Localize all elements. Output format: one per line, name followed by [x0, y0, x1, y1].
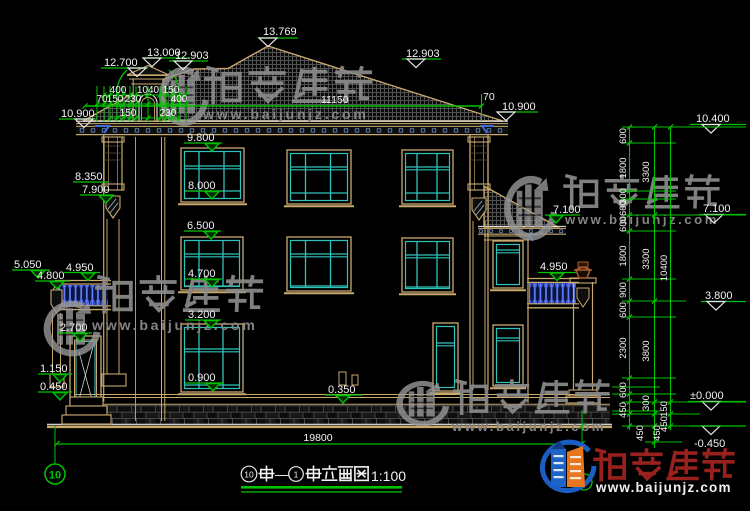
svg-text:3800: 3800: [641, 340, 652, 361]
svg-text:2300: 2300: [618, 337, 629, 358]
svg-text:www.baijunjz.com: www.baijunjz.com: [91, 318, 258, 334]
svg-text:8.000: 8.000: [188, 180, 216, 192]
svg-text:3300: 3300: [641, 248, 652, 269]
svg-text:10.900: 10.900: [502, 101, 536, 113]
svg-text:3300: 3300: [641, 161, 652, 182]
svg-text:4.950: 4.950: [540, 261, 568, 273]
svg-text:13.769: 13.769: [263, 26, 297, 38]
svg-text:600: 600: [618, 128, 629, 144]
svg-text:8.350: 8.350: [75, 171, 103, 183]
svg-text:450: 450: [635, 425, 646, 441]
svg-text:www.baijunjz.com: www.baijunjz.com: [202, 107, 369, 123]
svg-text:-0.450: -0.450: [694, 438, 725, 450]
svg-text:900: 900: [618, 282, 629, 298]
svg-text:9.800: 9.800: [187, 132, 215, 144]
svg-text:3.200: 3.200: [188, 309, 216, 321]
svg-text:12.700: 12.700: [104, 57, 138, 69]
svg-text:10400: 10400: [659, 255, 670, 281]
svg-text:1:100: 1:100: [371, 468, 406, 484]
svg-text:7.900: 7.900: [82, 184, 110, 196]
svg-text:www.baijunjz.com: www.baijunjz.com: [564, 212, 719, 227]
svg-text:150: 150: [120, 108, 137, 119]
svg-text:150: 150: [659, 401, 670, 417]
svg-text:4.800: 4.800: [37, 270, 65, 282]
svg-text:1.150: 1.150: [40, 363, 68, 375]
svg-text:600: 600: [618, 382, 629, 398]
svg-text:0.350: 0.350: [328, 384, 356, 396]
svg-text:1800: 1800: [618, 245, 629, 266]
svg-text:600: 600: [618, 302, 629, 318]
svg-text:10: 10: [244, 470, 254, 480]
svg-text:12.903: 12.903: [406, 48, 440, 60]
svg-text:12.903: 12.903: [175, 50, 209, 62]
svg-text:450: 450: [652, 425, 663, 441]
svg-text:11150: 11150: [321, 94, 349, 106]
svg-text:7.100: 7.100: [703, 203, 731, 215]
svg-text:2.700: 2.700: [60, 322, 88, 334]
svg-text:www.baijunjz.com: www.baijunjz.com: [595, 480, 732, 495]
svg-text:600: 600: [618, 200, 629, 216]
svg-text:450: 450: [618, 402, 629, 418]
svg-text:10.900: 10.900: [61, 108, 95, 120]
svg-text:70: 70: [483, 91, 495, 103]
svg-text:0.900: 0.900: [188, 372, 216, 384]
svg-text:230: 230: [125, 94, 142, 105]
svg-text:1: 1: [294, 470, 299, 480]
svg-text:1800: 1800: [618, 157, 629, 178]
svg-text:7.100: 7.100: [553, 204, 581, 216]
svg-text:300: 300: [641, 395, 652, 411]
svg-text:—: —: [275, 466, 289, 482]
svg-text:3.800: 3.800: [705, 290, 733, 302]
svg-text:4.700: 4.700: [188, 268, 216, 280]
svg-text:www.baijunjz.com: www.baijunjz.com: [451, 419, 606, 434]
svg-text:6.500: 6.500: [187, 220, 215, 232]
svg-text:150: 150: [107, 94, 124, 105]
svg-text:0.450: 0.450: [40, 381, 68, 393]
svg-text:19800: 19800: [303, 432, 332, 444]
svg-text:230: 230: [160, 108, 177, 119]
svg-text:10: 10: [49, 470, 61, 482]
svg-text:±0.000: ±0.000: [690, 390, 724, 402]
svg-text:10.400: 10.400: [696, 113, 730, 125]
svg-text:600: 600: [618, 216, 629, 232]
svg-text:400: 400: [171, 94, 188, 105]
